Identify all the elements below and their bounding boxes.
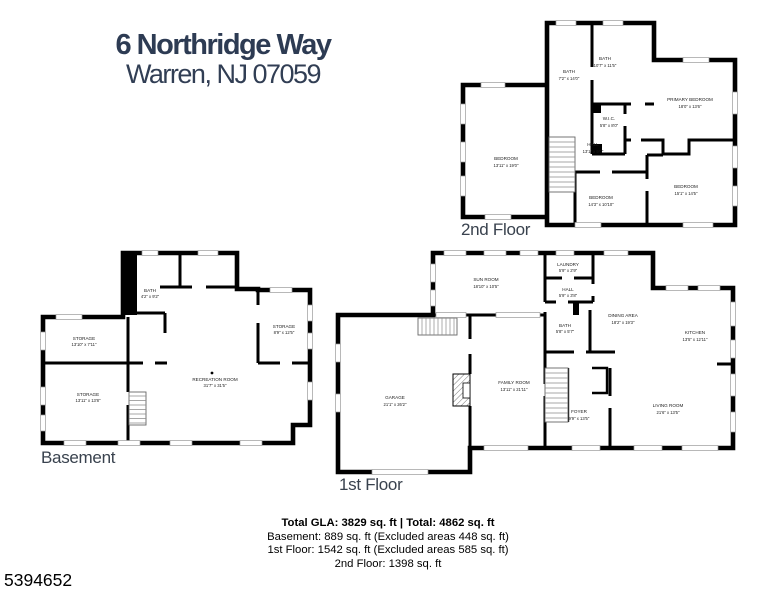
room-dims: 4'2" x 9'2" [141, 294, 160, 299]
room-dims: 8'9" x 12'5" [274, 330, 295, 335]
summary-second-floor: 2nd Floor: 1398 sq. ft [0, 558, 776, 572]
room-label: BATH [144, 288, 156, 293]
listing-id: 5394652 [4, 570, 72, 591]
second-floor-plan: BATH 7'2" x 14'0" BATH 10'7" x 11'5" PRI… [453, 14, 753, 230]
room-label: STORAGE [77, 392, 99, 397]
room-dims: 31'7" x 31'5" [204, 383, 227, 388]
room-label: HALL [587, 142, 599, 147]
room-dims: 13'10" x 7'11" [72, 342, 97, 347]
room-dims: 13'11" x 21'11" [500, 387, 528, 392]
room-label: FAMILY ROOM [498, 380, 530, 385]
room-dims: 18'0" x 13'6" [679, 104, 702, 109]
room-dims: 5'8" x 8'0" [600, 123, 619, 128]
room-label: SUN ROOM [473, 277, 498, 282]
room-dims: 18'10" x 10'5" [473, 284, 499, 289]
fireplace [453, 374, 470, 406]
room-dims: 13'1" x 9'0" [583, 149, 604, 154]
room-dims: 18'2" x 19'3" [612, 320, 635, 325]
room-dims: 21'6" x 13'5" [657, 410, 680, 415]
room-label: HALL [562, 287, 574, 292]
room-label: BATH [599, 56, 611, 61]
summary-total: Total GLA: 3829 sq. ft | Total: 4862 sq.… [0, 517, 776, 531]
room-dims: 5'8" x 5'7" [556, 329, 575, 334]
room-dims: 10'7" x 11'5" [594, 63, 617, 68]
room-label: BATH [559, 323, 571, 328]
floorplan-page: { "title": { "line1": "6 Northridge Way"… [0, 0, 776, 600]
room-dims: 21'1" x 26'2" [384, 402, 407, 407]
room-dims: 15'1" x 14'5" [675, 191, 698, 196]
room-label: LIVING ROOM [653, 403, 684, 408]
second-floor-room-labels: BATH 7'2" x 14'0" BATH 10'7" x 11'5" PRI… [494, 56, 714, 207]
basement-walls [43, 253, 310, 443]
room-label: BATH [563, 69, 575, 74]
first-floor-stairs-upper [418, 318, 457, 335]
basement-room-labels: BATH 4'2" x 9'2" STORAGE 13'10" x 7'11" … [72, 288, 296, 403]
basement-stairs [129, 392, 146, 425]
room-label: BEDROOM [589, 195, 613, 200]
second-floor-label: 2nd Floor [461, 220, 530, 240]
basement-plan: BATH 4'2" x 9'2" STORAGE 13'10" x 7'11" … [40, 247, 315, 452]
second-floor-stairs [549, 137, 575, 192]
first-floor-label: 1st Floor [339, 475, 402, 495]
room-label: DINING AREA [608, 313, 639, 318]
room-dims: 7'2" x 14'0" [559, 76, 580, 81]
room-dims: 5'9" x 3'8" [559, 293, 578, 298]
room-dims: 13'11" x 19'0" [494, 163, 519, 168]
room-dims: 13'11" x 13'8" [76, 398, 101, 403]
basement-windows [41, 251, 313, 446]
room-label: RECREATION ROOM [192, 377, 238, 382]
first-floor-windows [336, 251, 736, 475]
room-label: W.I.C. [603, 116, 616, 121]
room-label: BEDROOM [674, 184, 698, 189]
summary-basement: Basement: 889 sq. ft (Excluded areas 448… [0, 531, 776, 545]
room-dims: 5'9" x 2'9" [559, 268, 578, 273]
basement-label: Basement [41, 448, 115, 468]
address-line: 6 Northridge Way [86, 30, 360, 60]
room-label: PRIMARY BEDROOM [667, 97, 713, 102]
first-floor-plan: SUN ROOM 18'10" x 10'5" LAUNDRY 5'9" x 2… [334, 244, 736, 496]
room-dims: 14'3" x 10'10" [588, 202, 614, 207]
summary-first-floor: 1st Floor: 1542 sq. ft (Excluded areas 5… [0, 544, 776, 558]
first-floor-stairs-foyer [545, 368, 568, 422]
room-label: LAUNDRY [557, 262, 579, 267]
support-column-dot [211, 372, 214, 375]
property-address: 6 Northridge Way Warren, NJ 07059 [86, 30, 360, 89]
room-label: STORAGE [73, 336, 95, 341]
room-dims: 9'9" x 13'5" [569, 416, 590, 421]
room-label: BEDROOM [494, 156, 518, 161]
room-label: KITCHEN [685, 330, 705, 335]
city-state-zip: Warren, NJ 07059 [86, 60, 360, 89]
room-dims: 13'5" x 12'11" [683, 337, 708, 342]
room-label: GARAGE [385, 395, 405, 400]
room-label: STORAGE [273, 324, 295, 329]
area-summary: Total GLA: 3829 sq. ft | Total: 4862 sq.… [0, 517, 776, 571]
room-label: FOYER [571, 409, 588, 414]
